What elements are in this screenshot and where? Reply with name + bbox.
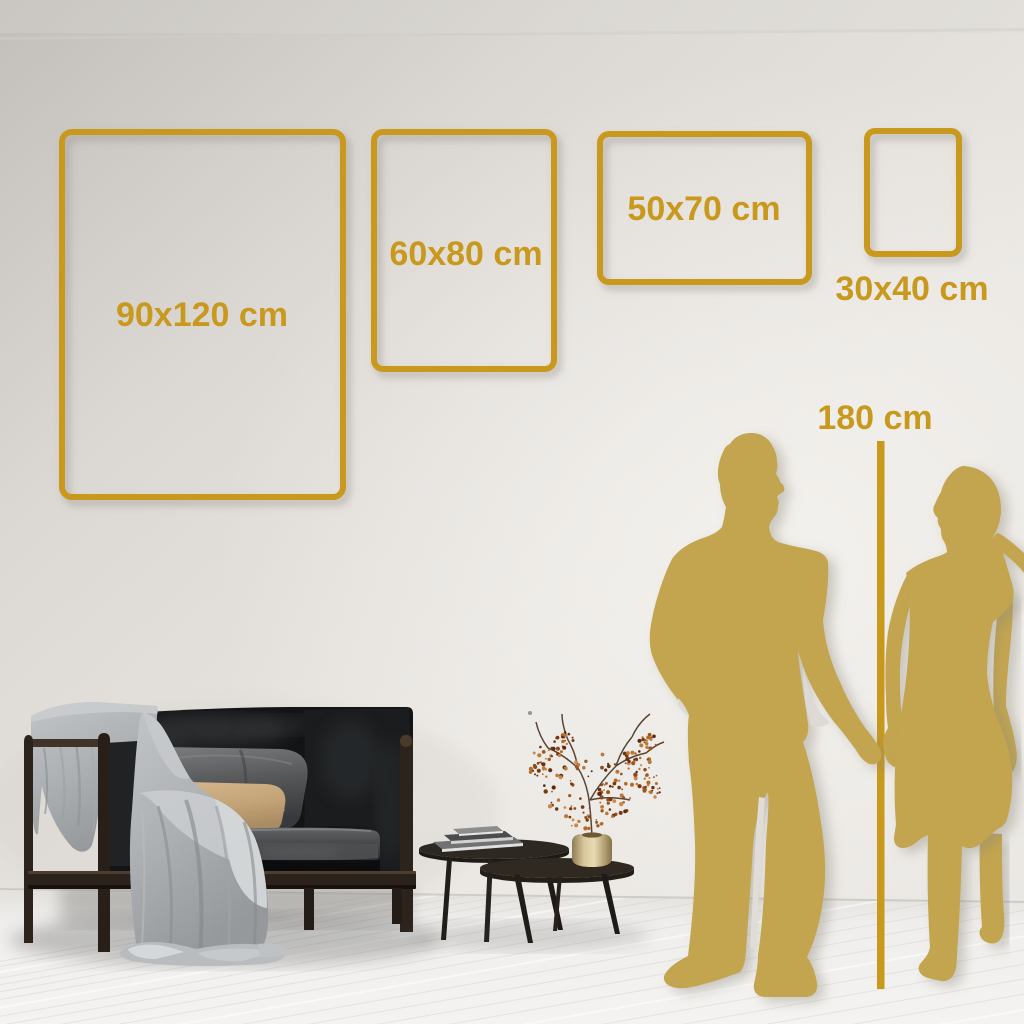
svg-text:30x40 cm: 30x40 cm <box>835 270 988 308</box>
svg-text:50x70 cm: 50x70 cm <box>627 190 780 228</box>
svg-text:180 cm: 180 cm <box>817 399 932 437</box>
svg-text:60x80 cm: 60x80 cm <box>389 235 542 273</box>
svg-text:90x120 cm: 90x120 cm <box>116 296 288 334</box>
